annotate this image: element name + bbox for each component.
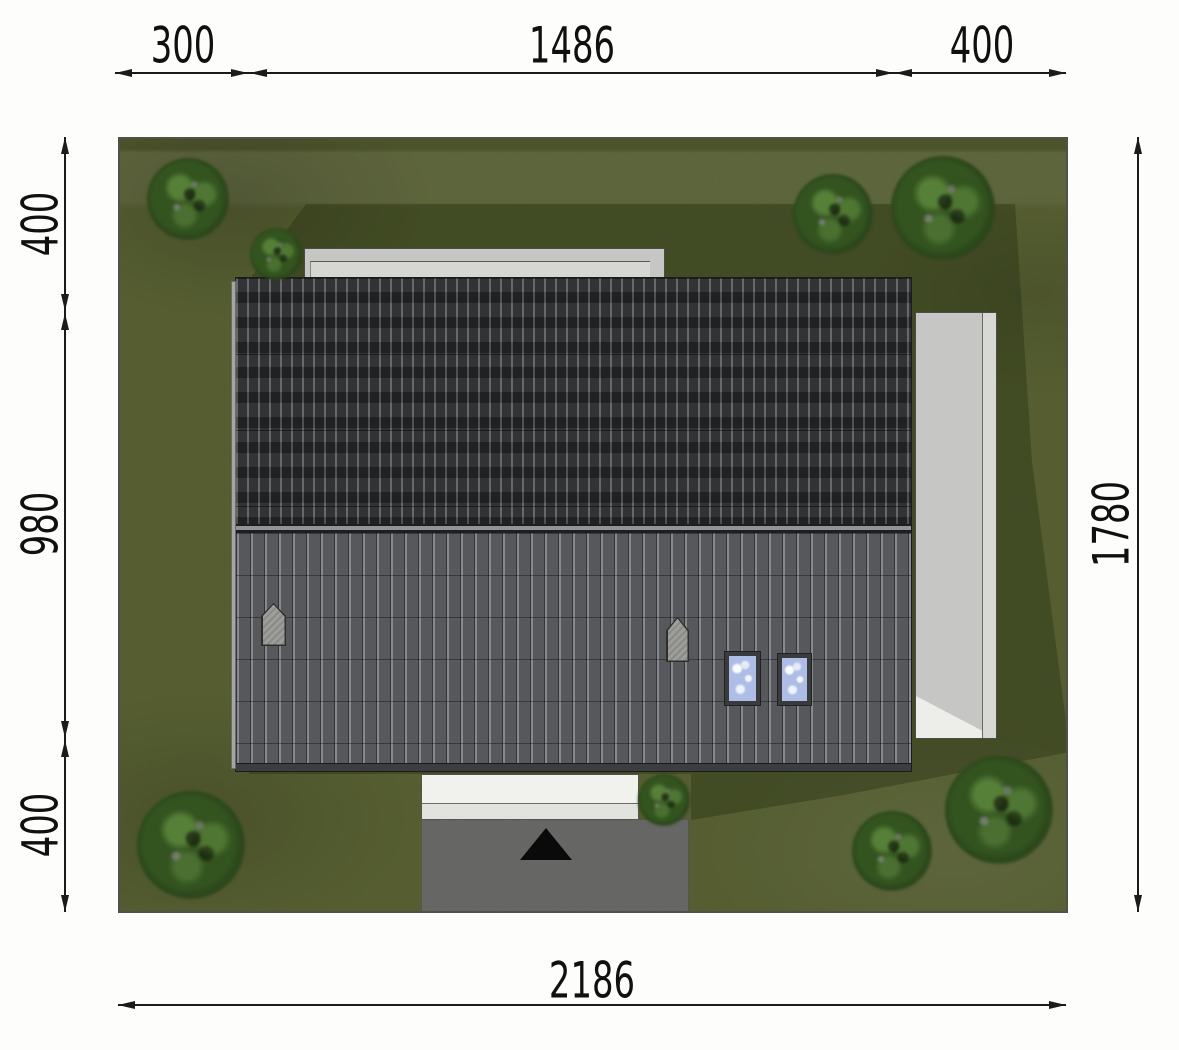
dim-left-980: 980 bbox=[12, 492, 70, 557]
tree bbox=[793, 174, 873, 254]
dim-left-400b: 400 bbox=[12, 793, 70, 858]
tree bbox=[638, 774, 690, 826]
dim-right-1780: 1780 bbox=[1083, 481, 1141, 567]
tree bbox=[891, 156, 995, 260]
roof-upper-slope bbox=[236, 278, 911, 524]
roof-lower-slope bbox=[236, 533, 911, 763]
tree bbox=[250, 228, 302, 280]
tree bbox=[147, 158, 229, 240]
chimney bbox=[666, 617, 689, 662]
dim-top-300: 300 bbox=[151, 17, 216, 75]
tree bbox=[852, 811, 932, 891]
dim-left-400a: 400 bbox=[12, 192, 70, 257]
tree bbox=[945, 756, 1053, 864]
plot-boundary bbox=[118, 137, 1068, 913]
roof-window bbox=[725, 652, 760, 705]
entrance-step bbox=[422, 803, 638, 819]
entrance-arrow-icon bbox=[520, 828, 572, 860]
terrace-top bbox=[304, 248, 665, 279]
tree bbox=[137, 791, 245, 899]
dim-top-400: 400 bbox=[950, 17, 1015, 75]
entrance-walkway bbox=[421, 774, 639, 820]
chimney bbox=[261, 603, 286, 646]
site-plan-canvas: 300 1486 400 400 980 400 1780 2186 bbox=[0, 0, 1179, 1050]
terrace-right-edge bbox=[982, 313, 996, 738]
dim-bottom-2186: 2186 bbox=[549, 952, 635, 1010]
terrace-right bbox=[915, 312, 997, 739]
dim-top-1486: 1486 bbox=[529, 17, 615, 75]
roof-window bbox=[778, 654, 811, 705]
roof-ridge bbox=[236, 524, 911, 533]
roof-eave-bottom bbox=[236, 763, 911, 771]
